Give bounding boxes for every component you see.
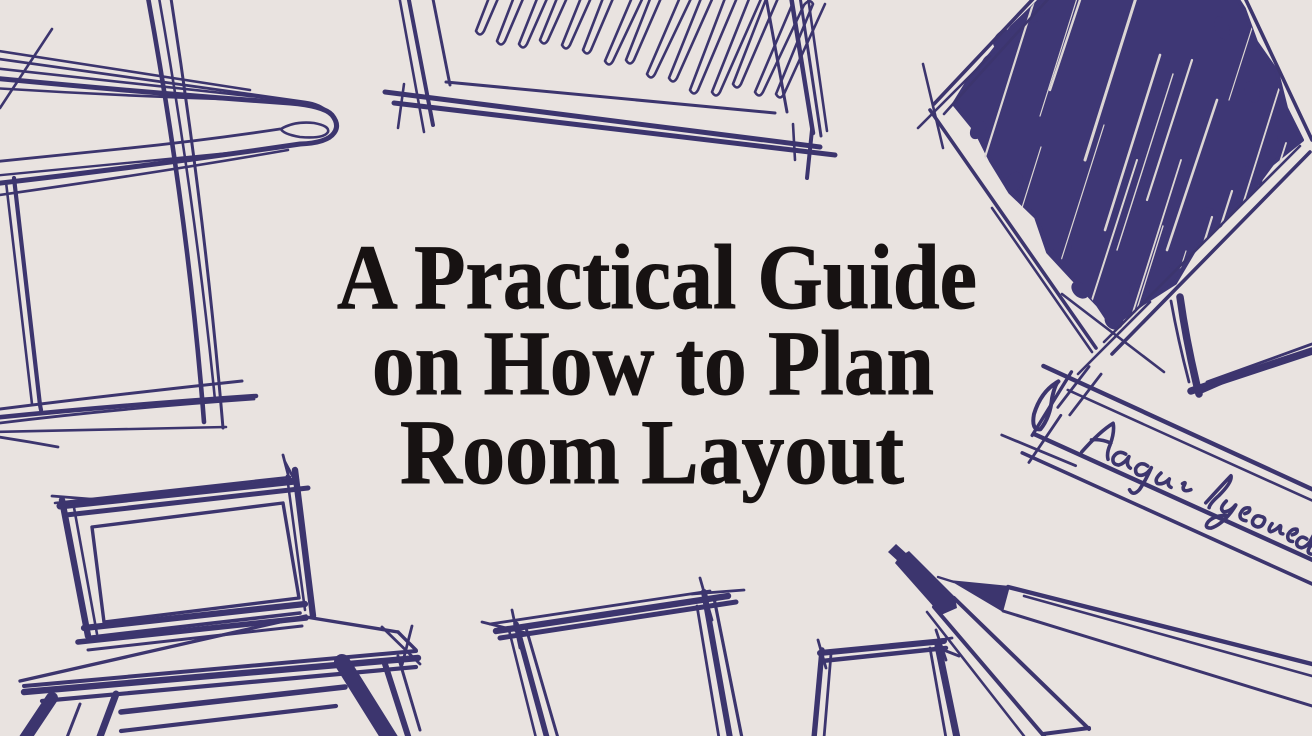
svg-text:on How to Plan: on How to Plan	[372, 312, 934, 414]
svg-text:Room Layout: Room Layout	[400, 401, 904, 503]
